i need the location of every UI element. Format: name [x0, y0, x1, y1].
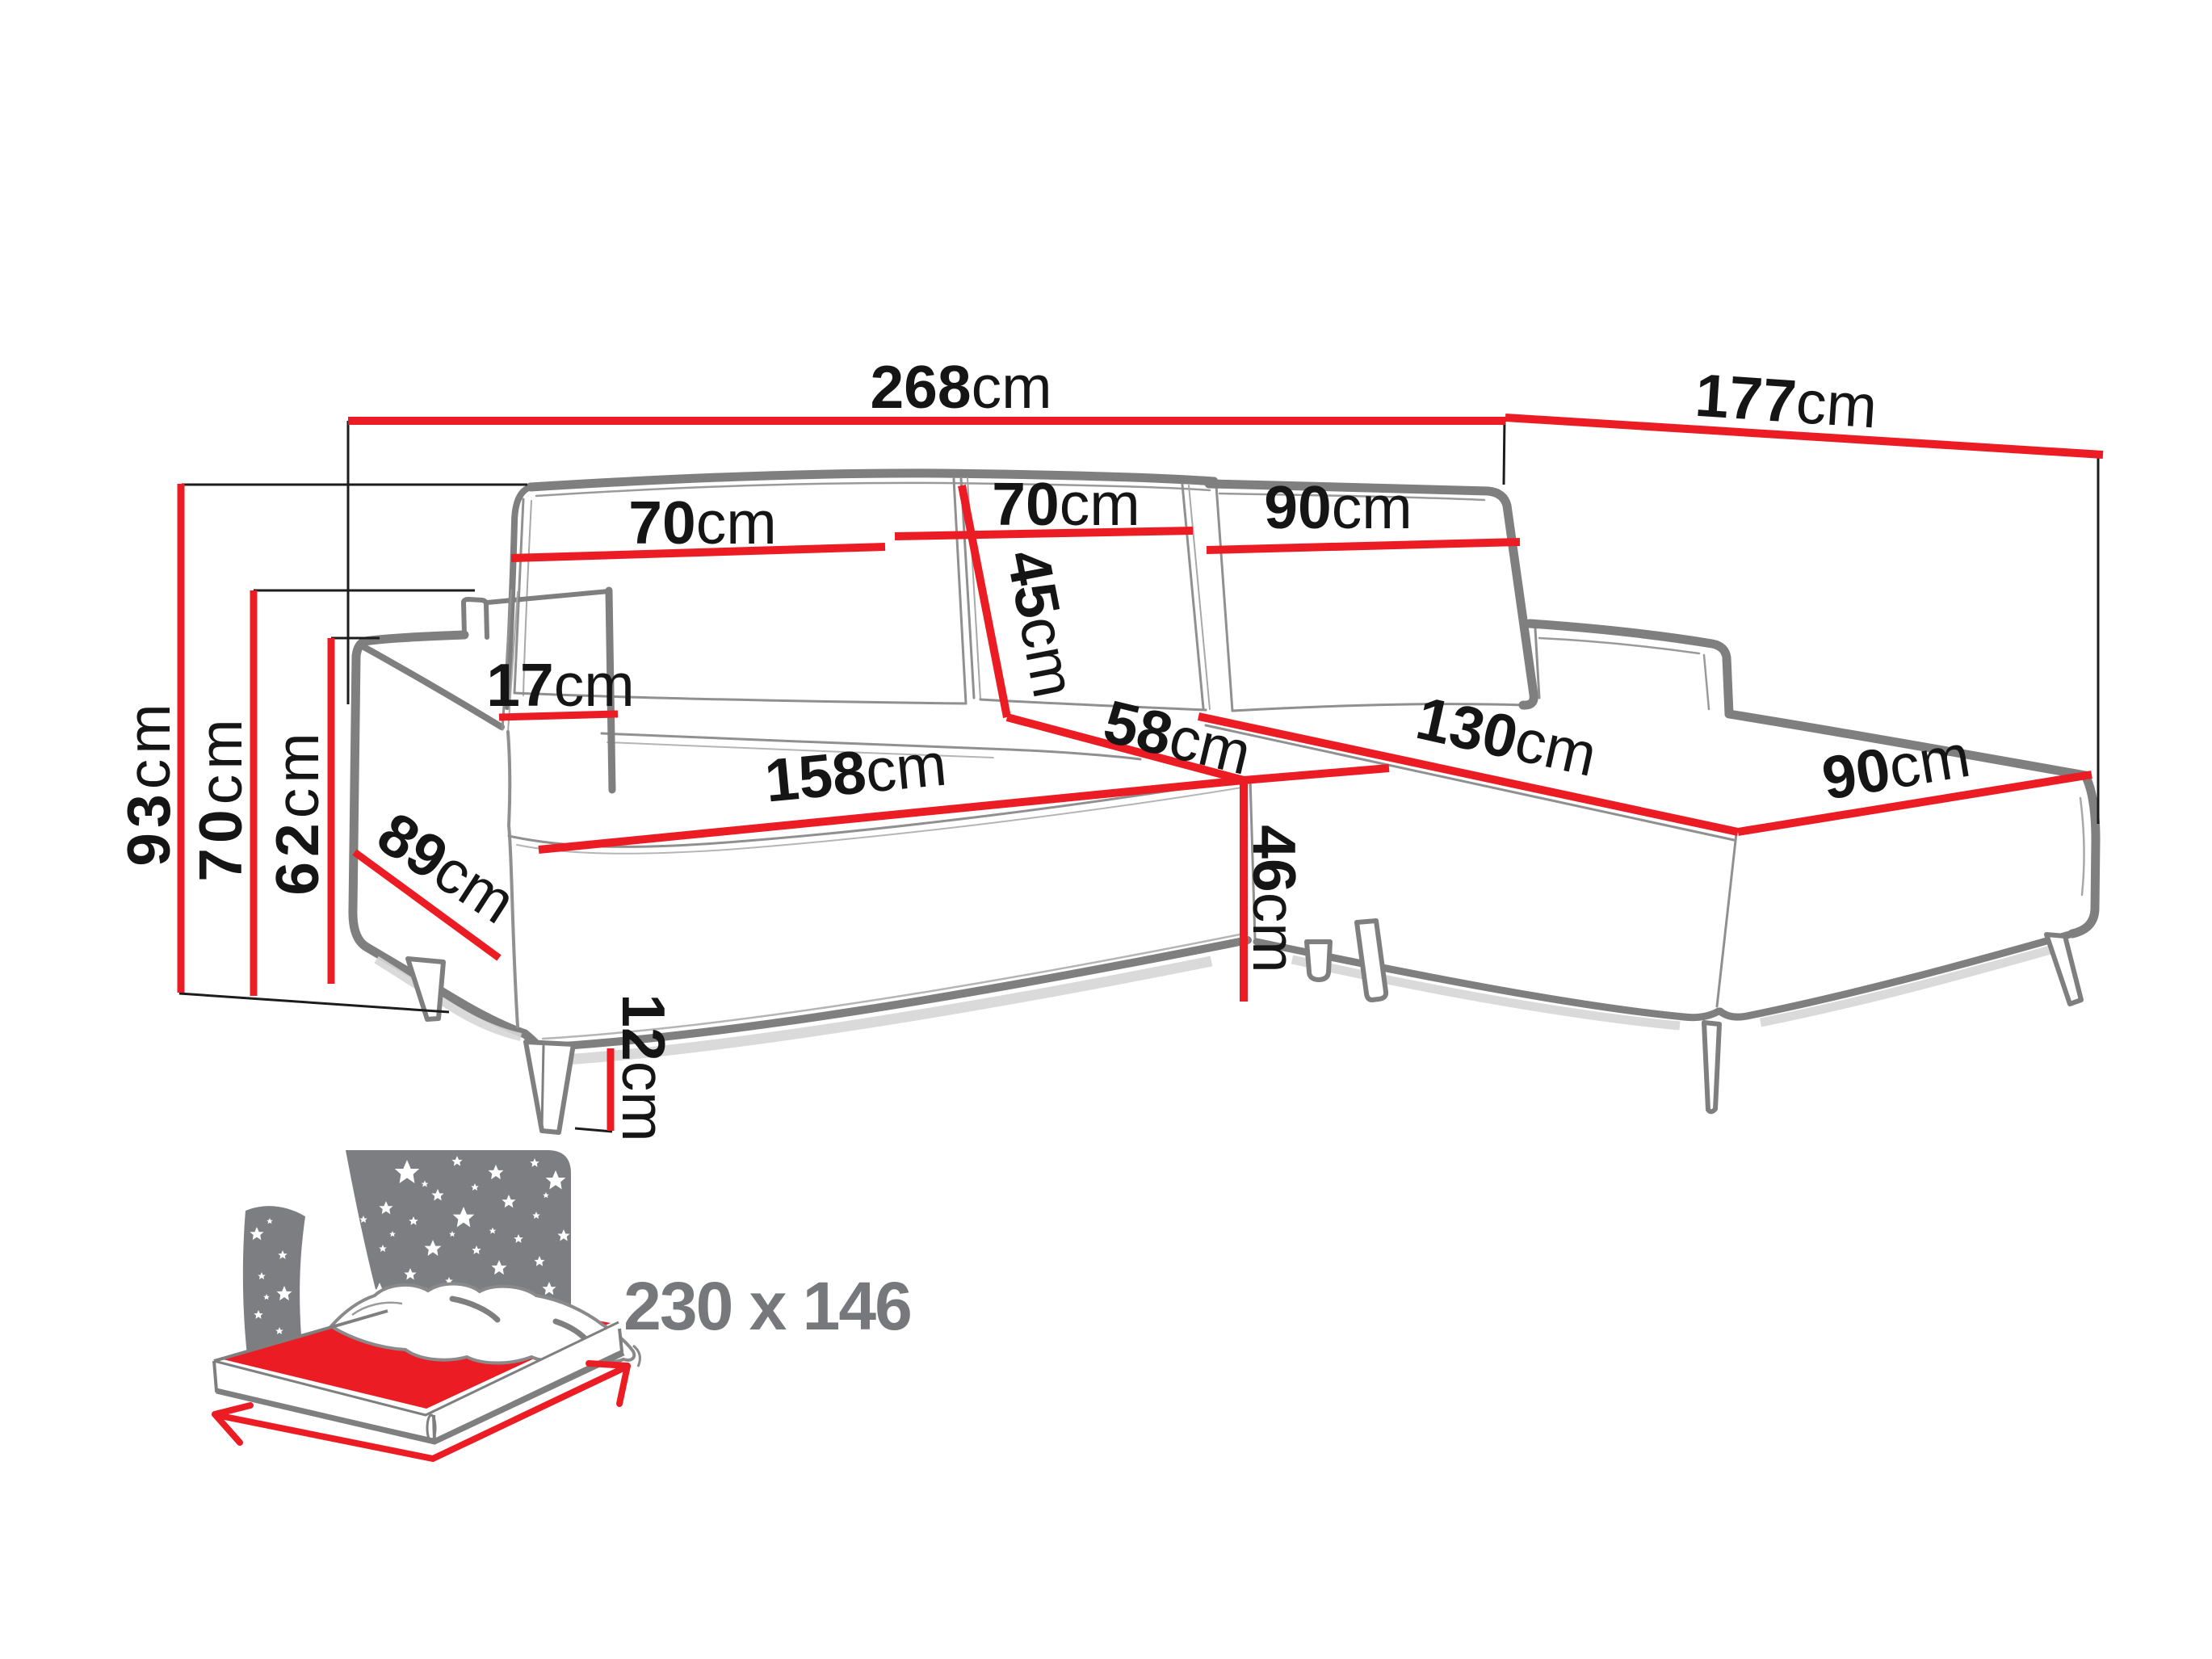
svg-text:46cm: 46cm [1240, 825, 1308, 972]
svg-text:70cm: 70cm [187, 714, 254, 881]
svg-text:12cm: 12cm [610, 993, 678, 1141]
svg-text:93cm: 93cm [115, 699, 183, 866]
svg-text:177cm: 177cm [1694, 361, 1879, 441]
svg-text:70cm: 70cm [992, 470, 1140, 538]
svg-text:230 x 146: 230 x 146 [623, 1268, 911, 1344]
svg-text:70cm: 70cm [628, 489, 776, 556]
svg-text:17cm: 17cm [486, 651, 634, 719]
svg-text:268cm: 268cm [870, 353, 1051, 421]
svg-text:90cm: 90cm [1264, 473, 1412, 541]
svg-text:62cm: 62cm [263, 728, 331, 895]
